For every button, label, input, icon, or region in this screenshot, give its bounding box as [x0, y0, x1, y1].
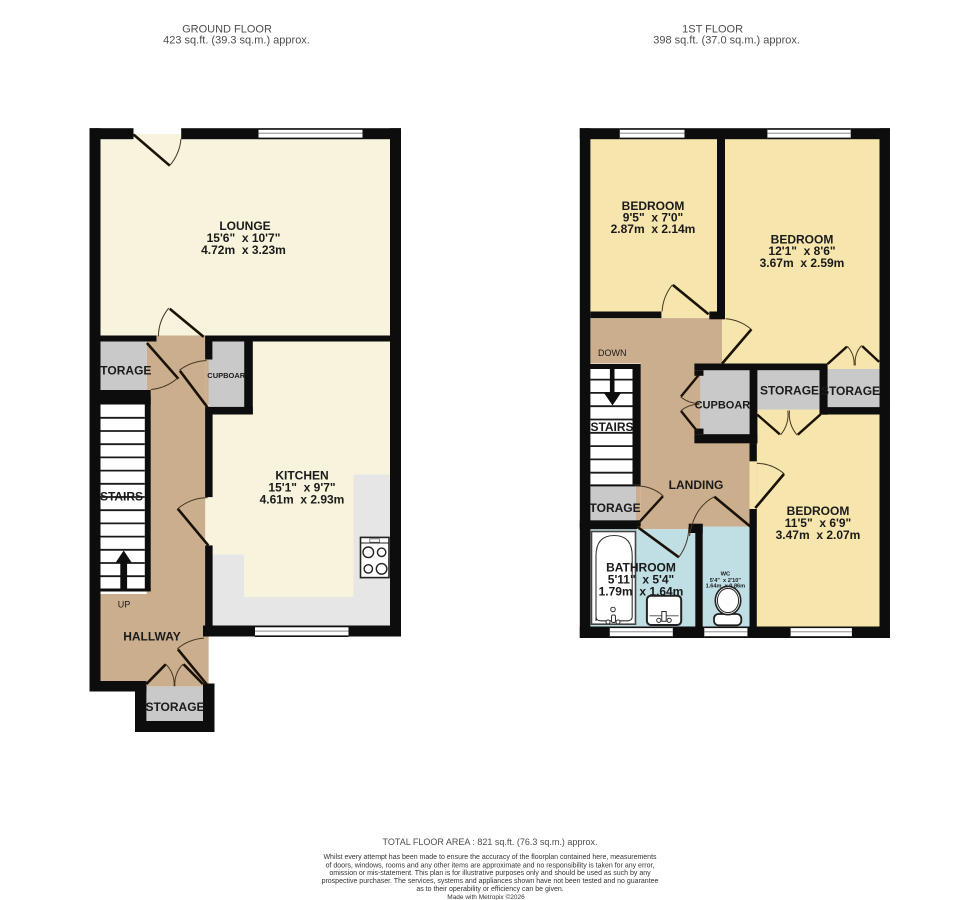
svg-text:4.72m x 3.23m: 4.72m x 3.23m: [201, 243, 286, 257]
svg-text:1ST FLOOR: 1ST FLOOR: [682, 23, 743, 35]
svg-text:UP: UP: [118, 599, 131, 609]
svg-text:3.47m x 2.07m: 3.47m x 2.07m: [776, 528, 861, 542]
svg-text:TORAGE: TORAGE: [100, 364, 151, 378]
svg-text:4.61m x 2.93m: 4.61m x 2.93m: [260, 493, 345, 507]
svg-text:1.64m x 0.86m: 1.64m x 0.86m: [706, 584, 746, 590]
svg-text:2.87m x 2.14m: 2.87m x 2.14m: [611, 222, 696, 236]
svg-text:CUPBOAR: CUPBOAR: [695, 399, 751, 411]
svg-text:WC: WC: [721, 572, 731, 578]
svg-text:STAIRS: STAIRS: [590, 420, 633, 434]
svg-text:423 sq.ft. (39.3 sq.m.) approx: 423 sq.ft. (39.3 sq.m.) approx.: [163, 35, 310, 47]
svg-text:TORAGE: TORAGE: [590, 501, 641, 515]
svg-text:of doors, windows, rooms and a: of doors, windows, rooms and any other i…: [326, 862, 655, 869]
svg-text:398 sq.ft. (37.0 sq.m.) approx: 398 sq.ft. (37.0 sq.m.) approx.: [653, 35, 800, 47]
svg-text:HALLWAY: HALLWAY: [123, 629, 181, 643]
svg-text:omission or mis-statement. Thi: omission or mis-statement. This plan is …: [329, 870, 651, 877]
svg-text:1.79m x 1.64m: 1.79m x 1.64m: [599, 585, 684, 599]
svg-text:Made with Metropix ©2026: Made with Metropix ©2026: [447, 893, 525, 900]
svg-text:STAIRS: STAIRS: [100, 490, 143, 504]
svg-text:STORAGE: STORAGE: [145, 700, 204, 714]
svg-text:as to their operability or eff: as to their operability or efficiency ca…: [416, 886, 563, 893]
svg-text:DOWN: DOWN: [598, 348, 627, 358]
svg-text:3.67m x 2.59m: 3.67m x 2.59m: [760, 256, 845, 270]
svg-text:Whilst every attempt has been: Whilst every attempt has been made to en…: [323, 854, 657, 861]
svg-text:LANDING: LANDING: [669, 478, 724, 492]
svg-text:STORAGE: STORAGE: [821, 384, 880, 398]
svg-text:STORAGE: STORAGE: [760, 383, 819, 397]
svg-text:GROUND FLOOR: GROUND FLOOR: [182, 23, 272, 35]
svg-text:prospective purchaser. The ser: prospective purchaser. The services, sys…: [322, 878, 659, 885]
svg-text:CUPBOAR: CUPBOAR: [207, 371, 246, 380]
svg-text:TOTAL FLOOR AREA : 821 sq.ft.: TOTAL FLOOR AREA : 821 sq.ft. (76.3 sq.m…: [383, 837, 598, 847]
